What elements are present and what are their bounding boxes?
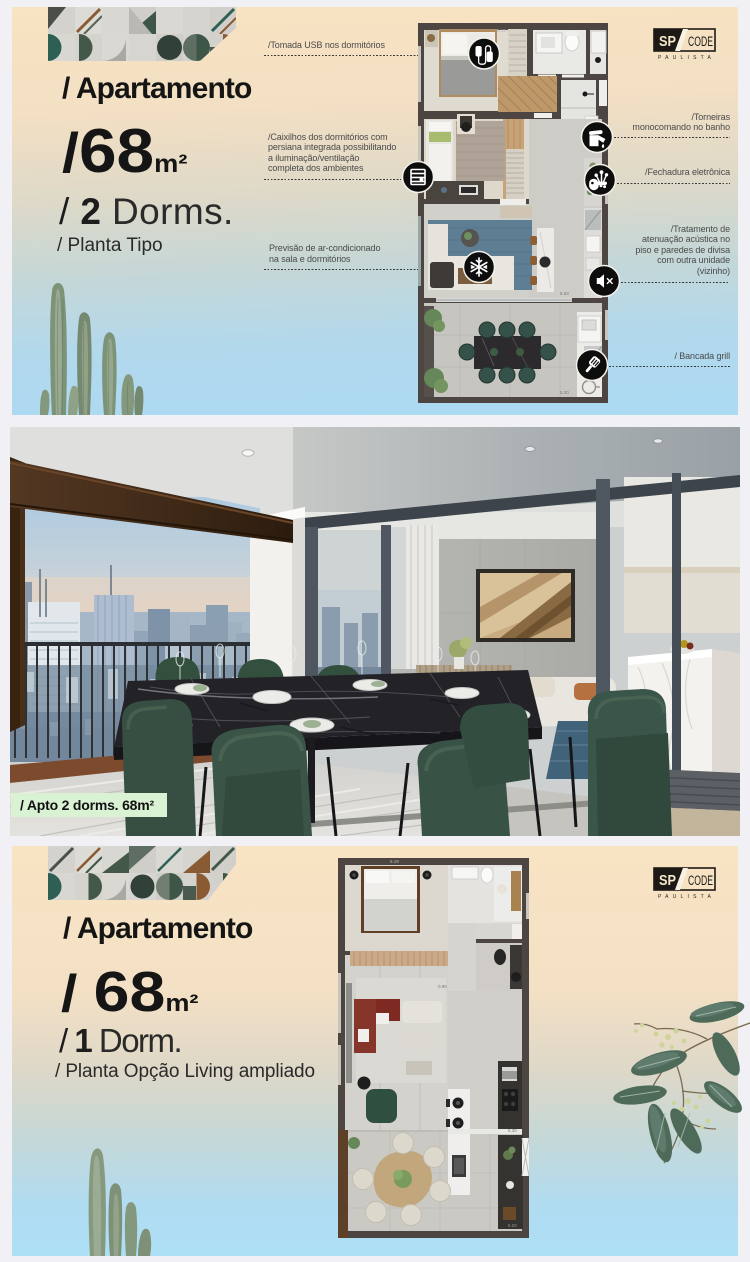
svg-text:5.30: 5.30 — [508, 1128, 517, 1133]
svg-text:5.19: 5.19 — [497, 28, 506, 33]
svg-text:PAULISTA: PAULISTA — [658, 894, 715, 900]
svg-text:5.19: 5.19 — [390, 859, 399, 864]
svg-text:5.20: 5.20 — [508, 1223, 517, 1228]
svg-text:CODE: CODE — [688, 34, 713, 49]
svg-text:SP: SP — [659, 34, 676, 50]
svg-text:CODE: CODE — [688, 873, 713, 888]
svg-text:5.53: 5.53 — [560, 291, 569, 296]
svg-text:PAULISTA: PAULISTA — [658, 55, 715, 61]
svg-text:0.90: 0.90 — [438, 984, 447, 989]
svg-text:5.20: 5.20 — [560, 390, 569, 395]
svg-text:SP: SP — [659, 873, 676, 889]
